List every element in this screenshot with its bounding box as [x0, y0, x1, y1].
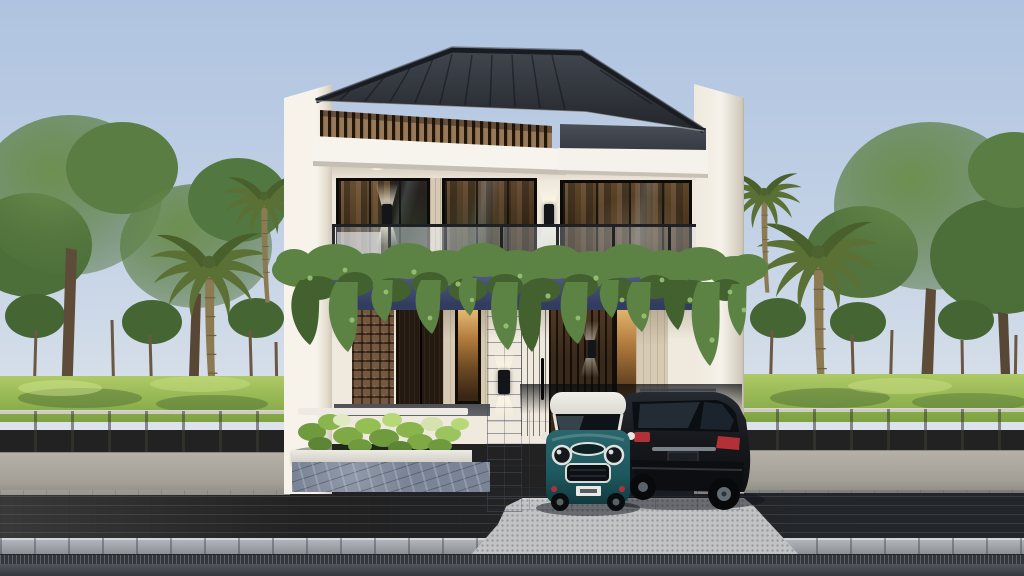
wall-sconce [382, 204, 392, 226]
carport-floor [487, 410, 744, 510]
fence-left [0, 410, 290, 455]
flagstone-base [292, 462, 490, 492]
fence-base-left [0, 452, 290, 495]
ceiling-downlight [370, 162, 384, 170]
ceiling-downlight [625, 165, 639, 173]
wall-sconce [544, 204, 554, 226]
parapet-wall-left [284, 84, 332, 494]
street-asphalt [0, 564, 1024, 576]
lit-window [455, 302, 481, 404]
carport-ceiling-shadow [520, 384, 742, 414]
breeze-block-panel [352, 302, 394, 416]
timber-double-door [396, 306, 446, 413]
rendered-scene [0, 0, 1024, 576]
wall-sconce [588, 340, 596, 358]
pillar-sconce [498, 370, 510, 394]
porch-floor [334, 404, 490, 416]
fence-base-right [742, 450, 1024, 493]
fence-right [742, 408, 1024, 453]
ceiling-downlight [504, 161, 518, 169]
